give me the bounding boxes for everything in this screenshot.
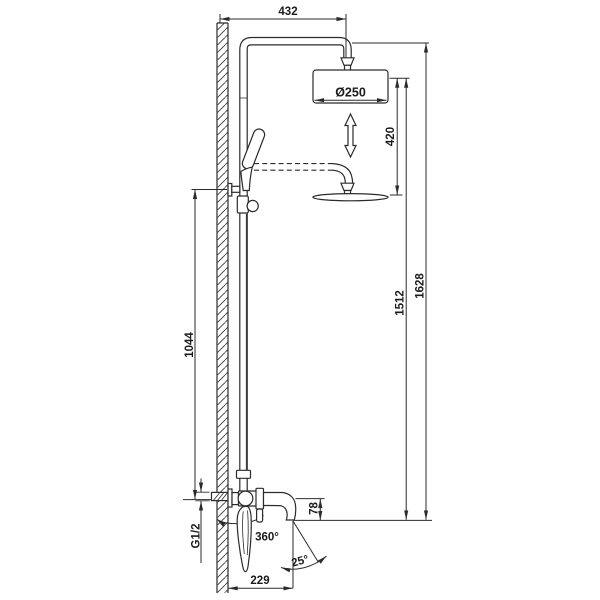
- head-height-label: 1512: [395, 290, 407, 316]
- diverter-tab: [257, 509, 263, 522]
- spout-reach-label: 229: [250, 575, 269, 587]
- dimension-spout-reach: 229: [228, 575, 293, 588]
- total-height-label: 1628: [414, 273, 426, 299]
- riser-pipe: [240, 41, 348, 491]
- dimension-inlet-thread: G1/2: [190, 479, 209, 564]
- adjust-range-label: 420: [385, 127, 397, 146]
- lever-handle: [237, 506, 251, 571]
- shower-system-drawing: Ø250 360°: [0, 0, 600, 600]
- bracket-height-label: 1044: [184, 332, 196, 358]
- head-diameter-label: Ø250: [335, 86, 366, 100]
- dimension-top-width: 432: [220, 6, 346, 58]
- inlet-thread-label: G1/2: [190, 524, 202, 549]
- tub-spout: [264, 493, 296, 521]
- dimension-spout-height: 78: [296, 499, 325, 521]
- slider-knob: [247, 200, 258, 211]
- height-adjust-arrow: [345, 114, 356, 157]
- dimension-total-height: 1628: [352, 43, 429, 520]
- wall-bracket: [228, 184, 240, 197]
- top-width-label: 432: [278, 6, 297, 18]
- slider-clamp: [237, 196, 258, 213]
- overhead-shower-lowered-position: [254, 164, 388, 201]
- spray-angle-annotation: 25°: [281, 521, 327, 588]
- cartridge-cap: [238, 491, 253, 506]
- swivel-angle-label: 360°: [255, 532, 279, 544]
- spout-height-label: 78: [309, 502, 321, 515]
- technical-drawing-page: Ø250 360°: [0, 0, 600, 600]
- wall-section: [217, 23, 228, 593]
